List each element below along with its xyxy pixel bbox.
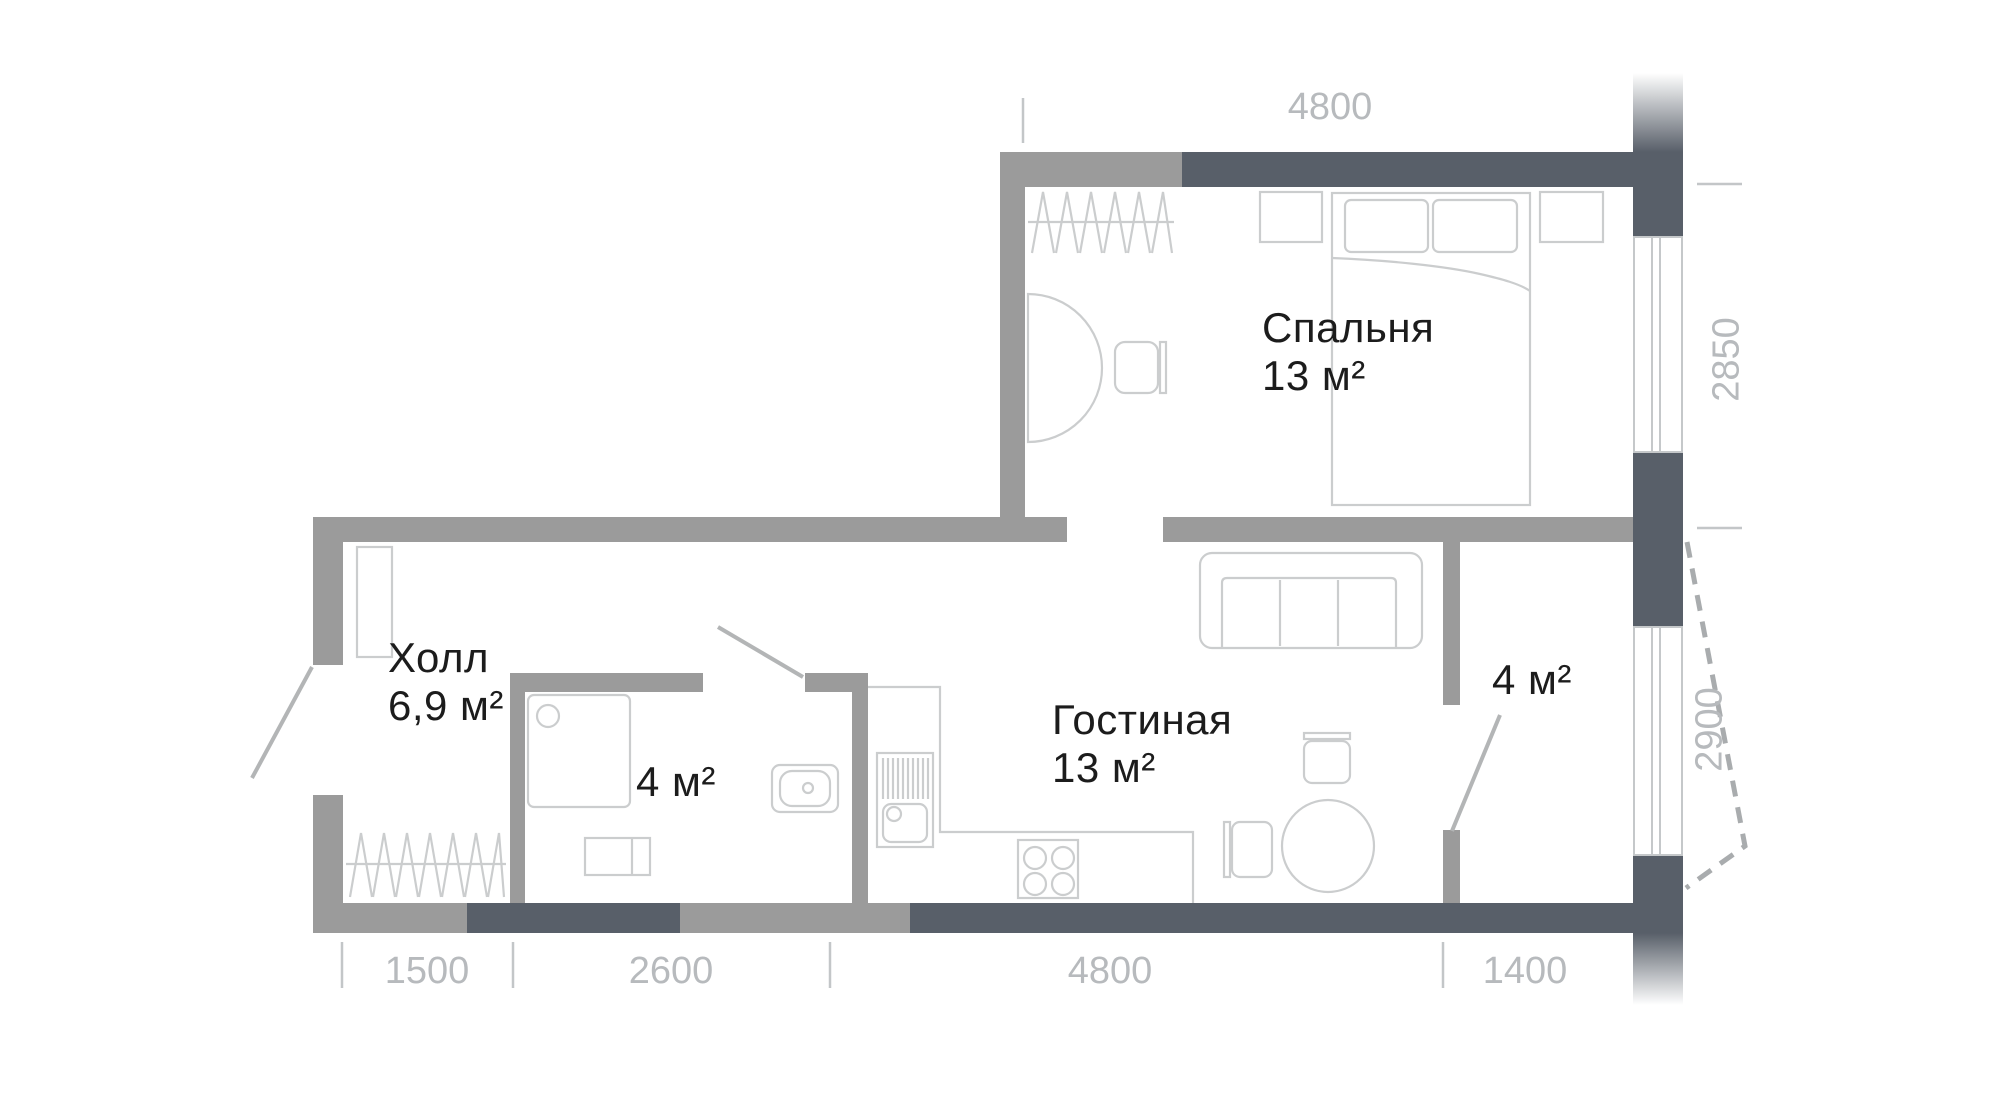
furniture — [346, 192, 1603, 903]
dining-chair-left-icon — [1224, 822, 1272, 877]
bathroom-label: 4 м² — [636, 758, 716, 806]
bathroom-door-leaf — [718, 627, 803, 677]
dining-chair-top-icon — [1304, 733, 1350, 783]
wall-top-light — [1000, 152, 1182, 187]
wall-hall-top — [313, 517, 1067, 542]
walls-dark — [467, 152, 1683, 933]
dim-right-2900: 2900 — [1689, 665, 1732, 795]
small-room-area: 4 м² — [1492, 656, 1572, 704]
living-label: Гостиная 13 м² — [1052, 696, 1232, 792]
sofa-icon — [1200, 553, 1422, 648]
bedroom-chair-icon — [1115, 342, 1166, 393]
wall-smallroom-left-lower — [1443, 830, 1460, 903]
wall-right-top-block — [1633, 187, 1683, 237]
dimension-ticks — [342, 98, 1742, 988]
window-balcony-door — [1634, 627, 1682, 855]
kitchen-sink-unit-icon — [877, 753, 933, 847]
hall-name: Холл — [388, 634, 504, 682]
wall-top-dark — [1182, 152, 1683, 187]
wall-fade-bottom — [1633, 933, 1683, 1005]
bedroom-name: Спальня — [1262, 304, 1434, 352]
bathroom-area: 4 м² — [636, 758, 716, 806]
smallroom-door-leaf — [1452, 715, 1500, 831]
blanket-fold-line — [1332, 258, 1530, 291]
bedroom-area: 13 м² — [1262, 352, 1434, 400]
nightstand-right-icon — [1540, 192, 1603, 242]
dining-table-icon — [1282, 800, 1374, 892]
wall-bedroom-bottom — [1163, 517, 1635, 542]
pillow-right-icon — [1433, 200, 1517, 252]
entrance-door-leaf — [252, 667, 312, 778]
wardrobe-hangers-icon — [1028, 192, 1174, 253]
dim-bottom-2600: 2600 — [571, 950, 771, 993]
wall-bedroom-left — [1000, 152, 1025, 542]
hall-label: Холл 6,9 м² — [388, 634, 504, 730]
dressing-table-icon — [1028, 294, 1102, 442]
wall-bottom-light-2 — [680, 903, 910, 933]
hall-area: 6,9 м² — [388, 682, 504, 730]
dim-top-4800: 4800 — [1230, 86, 1430, 129]
bedroom-label: Спальня 13 м² — [1262, 304, 1434, 400]
dim-bottom-1500: 1500 — [327, 950, 527, 993]
living-name: Гостиная — [1052, 696, 1232, 744]
washing-machine-icon — [585, 838, 650, 875]
walls-light — [313, 152, 1635, 933]
small-room-label: 4 м² — [1492, 656, 1572, 704]
nightstand-left-icon — [1260, 192, 1322, 242]
shower-icon — [528, 695, 630, 807]
wall-bottom-dark-1 — [467, 903, 680, 933]
dim-right-2850: 2850 — [1706, 295, 1749, 425]
wall-right-pier — [1633, 452, 1683, 627]
bathroom-sink-icon — [772, 765, 838, 812]
window-bedroom — [1634, 237, 1682, 452]
dim-bottom-4800: 4800 — [1010, 950, 1210, 993]
wall-fade-top — [1633, 73, 1683, 152]
wall-bathroom-right — [852, 673, 868, 903]
hall-cabinet-icon — [357, 547, 392, 657]
living-area: 13 м² — [1052, 744, 1232, 792]
wall-bathroom-left — [510, 673, 525, 903]
wall-smallroom-left-upper — [1443, 542, 1460, 705]
wall-bathroom-top-left — [510, 673, 703, 692]
wall-bottom-light-1 — [313, 903, 467, 933]
stove-icon — [1018, 840, 1078, 898]
dim-bottom-1400: 1400 — [1425, 950, 1625, 993]
hall-hangers-icon — [346, 833, 506, 897]
pillow-left-icon — [1345, 200, 1428, 252]
floor-plan: Спальня 13 м² Гостиная 13 м² Холл 6,9 м²… — [0, 0, 2000, 1097]
wall-left-upper — [313, 517, 343, 665]
floor-plan-canvas — [0, 0, 2000, 1097]
wall-bottom-dark-2 — [910, 903, 1683, 933]
